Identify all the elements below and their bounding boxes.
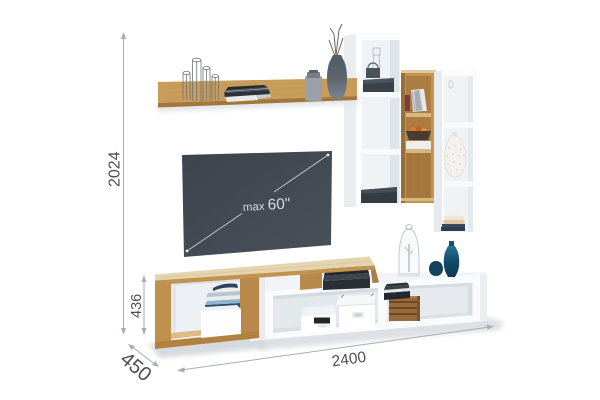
svg-text:436: 436: [129, 294, 145, 318]
svg-text:2024: 2024: [107, 151, 124, 187]
